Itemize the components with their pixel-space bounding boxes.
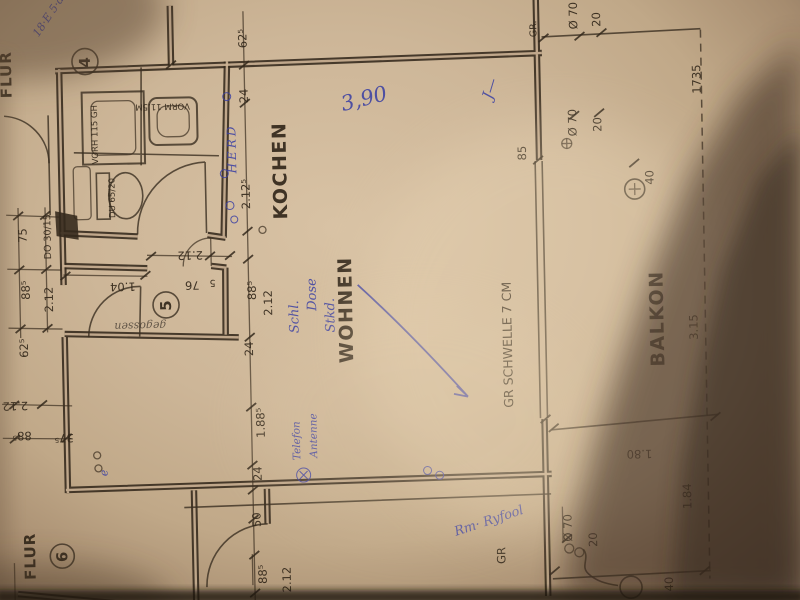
svg-text:2.12: 2.12 xyxy=(42,287,57,313)
svg-text:1735: 1735 xyxy=(689,64,704,94)
svg-text:88⁵: 88⁵ xyxy=(256,564,270,584)
handwriting-wohnen-2: Dose xyxy=(305,278,321,312)
svg-text:62⁵: 62⁵ xyxy=(17,338,31,358)
svg-text:75: 75 xyxy=(15,228,29,243)
photo-bottom-edge xyxy=(0,590,800,600)
door-arc-flur-top xyxy=(4,115,49,164)
svg-text:88⁵: 88⁵ xyxy=(245,280,259,300)
wc-label: DU 65/20 xyxy=(107,178,118,218)
handwriting-e-mark: e xyxy=(97,469,110,476)
radiator xyxy=(73,166,91,219)
handwriting-herd: HERD xyxy=(224,123,239,174)
herd-burner-mark xyxy=(231,216,238,223)
svg-text:DO 30/15: DO 30/15 xyxy=(42,214,54,259)
handwriting-pencil-note: gegossen xyxy=(114,319,166,333)
svg-text:24: 24 xyxy=(237,88,251,103)
svg-text:1.04: 1.04 xyxy=(110,280,136,295)
handwriting-wohnen-1: Schl. xyxy=(287,300,303,333)
room-number-6: 6 xyxy=(53,552,71,563)
svg-text:20: 20 xyxy=(589,12,603,27)
kitchen-outlet-mark xyxy=(259,226,266,233)
bathroom-fixtures xyxy=(53,90,200,240)
flash-hotspot-2 xyxy=(250,300,590,540)
room-label-kochen: KOCHEN xyxy=(268,122,292,220)
svg-text:2.12: 2.12 xyxy=(177,248,203,263)
door-swings xyxy=(4,111,269,591)
svg-text:62⁵: 62⁵ xyxy=(235,28,249,48)
edge-shadow-left xyxy=(0,60,8,600)
svg-text:50: 50 xyxy=(249,512,263,527)
gr-label-top: GR. xyxy=(528,20,539,37)
svg-text:24: 24 xyxy=(242,341,256,356)
basin-label: VORM 11.5M xyxy=(135,100,190,111)
svg-text:2.12⁵: 2.12⁵ xyxy=(238,178,253,209)
handwriting-j-mark: J— xyxy=(478,76,502,104)
switch-mark-a xyxy=(94,452,101,459)
floor-plan-canvas: FLUR 4 KOCHEN WOHNEN BALKON FLUR 6 5 VOR… xyxy=(0,0,800,600)
shower-label: VORH 115 GH xyxy=(90,105,101,164)
svg-text:76: 76 xyxy=(185,278,200,292)
svg-text:2.12: 2.12 xyxy=(261,290,276,316)
svg-text:24: 24 xyxy=(250,466,264,481)
room-number-5: 5 xyxy=(157,300,175,311)
svg-text:Ø 70: Ø 70 xyxy=(566,2,581,30)
svg-text:2.12: 2.12 xyxy=(280,567,295,593)
svg-text:88⁵: 88⁵ xyxy=(12,429,32,443)
photo-lighting xyxy=(0,0,800,600)
handwriting-kitchen-width: 3,90 xyxy=(338,81,389,116)
gr-label-bottom: GR xyxy=(494,547,508,564)
wall-pier-filled xyxy=(55,211,79,240)
svg-text:88⁵: 88⁵ xyxy=(19,280,33,300)
door-arc-bathroom xyxy=(136,162,206,234)
svg-text:37⁵: 37⁵ xyxy=(54,431,74,445)
floor-plan-photo: FLUR 4 KOCHEN WOHNEN BALKON FLUR 6 5 VOR… xyxy=(0,0,800,600)
svg-text:5: 5 xyxy=(209,277,215,288)
